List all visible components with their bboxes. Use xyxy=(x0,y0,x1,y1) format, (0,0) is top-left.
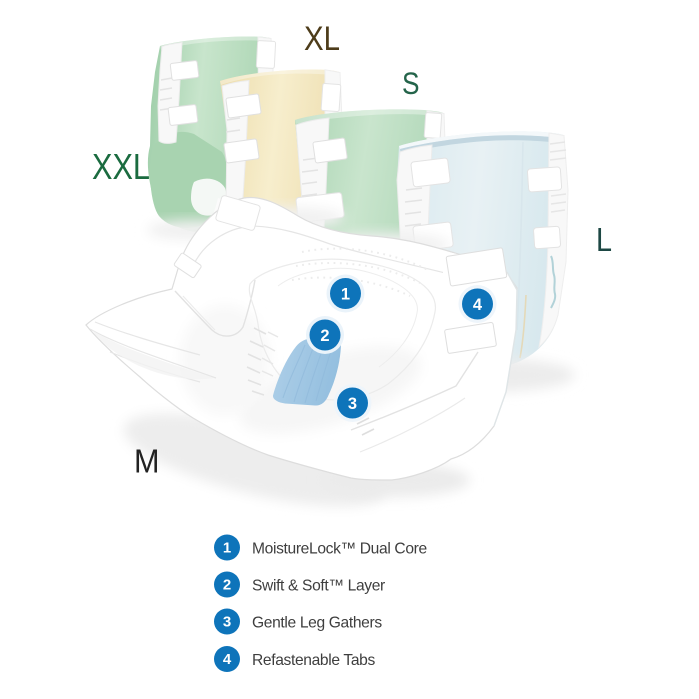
svg-text:1: 1 xyxy=(341,286,350,304)
svg-text:3: 3 xyxy=(348,395,357,413)
svg-text:1: 1 xyxy=(223,540,231,557)
svg-text:2: 2 xyxy=(223,577,231,594)
svg-text:4: 4 xyxy=(223,651,232,668)
svg-text:XXL: XXL xyxy=(92,146,150,187)
svg-text:S: S xyxy=(402,65,420,101)
svg-text:3: 3 xyxy=(223,614,231,631)
svg-text:MoistureLock™ Dual Core: MoistureLock™ Dual Core xyxy=(252,541,427,558)
svg-text:XL: XL xyxy=(304,20,340,58)
svg-text:L: L xyxy=(596,221,612,258)
svg-text:Swift & Soft™ Layer: Swift & Soft™ Layer xyxy=(252,578,385,595)
svg-text:M: M xyxy=(134,444,160,481)
svg-text:Refastenable Tabs: Refastenable Tabs xyxy=(252,652,375,669)
svg-text:2: 2 xyxy=(320,327,329,345)
svg-text:4: 4 xyxy=(473,296,483,314)
svg-text:Gentle Leg Gathers: Gentle Leg Gathers xyxy=(252,615,382,632)
